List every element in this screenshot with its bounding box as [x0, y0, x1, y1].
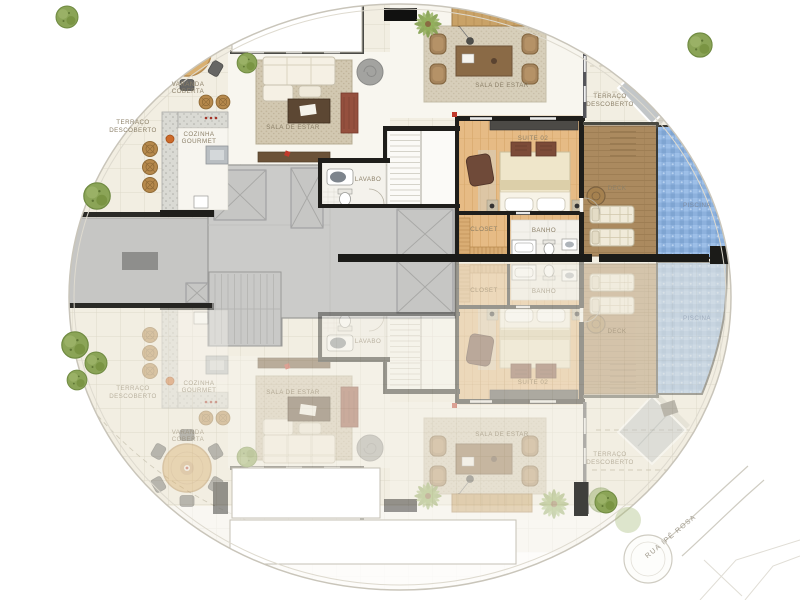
svg-text:DESCOBERTO: DESCOBERTO	[109, 127, 157, 134]
label-deck: DECK	[608, 185, 627, 192]
label-sala-de-estar-2-lower: SALA DE ESTAR	[475, 431, 529, 438]
label-sala-de-estar: SALA DE ESTAR	[266, 124, 320, 131]
svg-text:COBERTA: COBERTA	[172, 436, 205, 443]
label-sala-de-estar-lower: SALA DE ESTAR	[266, 389, 320, 396]
svg-text:GOURMET: GOURMET	[182, 387, 217, 394]
floor-plan-svg: VARANDA COBERTA TERRAÇO DESCOBERTO COZIN…	[0, 0, 800, 600]
label-closet-lower: CLOSET	[470, 287, 497, 294]
label-suite-02: SUITE 02	[518, 135, 549, 142]
label-suite-02-lower: SUITE 02	[518, 379, 549, 386]
label-cozinha-gourmet: COZINHA	[184, 131, 215, 138]
label-terraco-descoberto: TERRAÇO	[116, 119, 149, 126]
label-banho-lower: BANHO	[532, 288, 556, 295]
svg-text:COBERTA: COBERTA	[172, 88, 205, 95]
label-cozinha-gourmet-lower: COZINHA	[184, 380, 215, 387]
bush-faded	[615, 507, 641, 533]
floor-plan-page: VARANDA COBERTA TERRAÇO DESCOBERTO COZIN…	[0, 0, 800, 600]
svg-text:GOURMET: GOURMET	[182, 138, 217, 145]
label-terraco-descoberto-2-lower: TERRAÇO	[593, 451, 626, 458]
label-banho: BANHO	[532, 227, 556, 234]
void-lower	[232, 468, 380, 518]
label-piscina-lower: PISCINA	[683, 315, 711, 322]
svg-text:DESCOBERTO: DESCOBERTO	[586, 101, 634, 108]
label-varanda-coberta: VARANDA	[172, 81, 205, 88]
label-varanda-coberta-lower: VARANDA	[172, 429, 205, 436]
label-lavabo: LAVABO	[355, 176, 382, 183]
pillar	[574, 482, 588, 516]
label-closet: CLOSET	[470, 226, 497, 233]
corridor-mat	[122, 252, 158, 270]
label-sala-de-estar-2: SALA DE ESTAR	[475, 82, 529, 89]
svg-text:DESCOBERTO: DESCOBERTO	[109, 393, 157, 400]
svg-text:DESCOBERTO: DESCOBERTO	[586, 459, 634, 466]
label-piscina: PISCINA	[683, 202, 711, 209]
void-lower-2	[230, 520, 516, 564]
label-terraco-descoberto-lower: TERRAÇO	[116, 385, 149, 392]
label-lavabo-lower: LAVABO	[355, 338, 382, 345]
label-terraco-descoberto-2: TERRAÇO	[593, 93, 626, 100]
label-deck-lower: DECK	[608, 328, 627, 335]
